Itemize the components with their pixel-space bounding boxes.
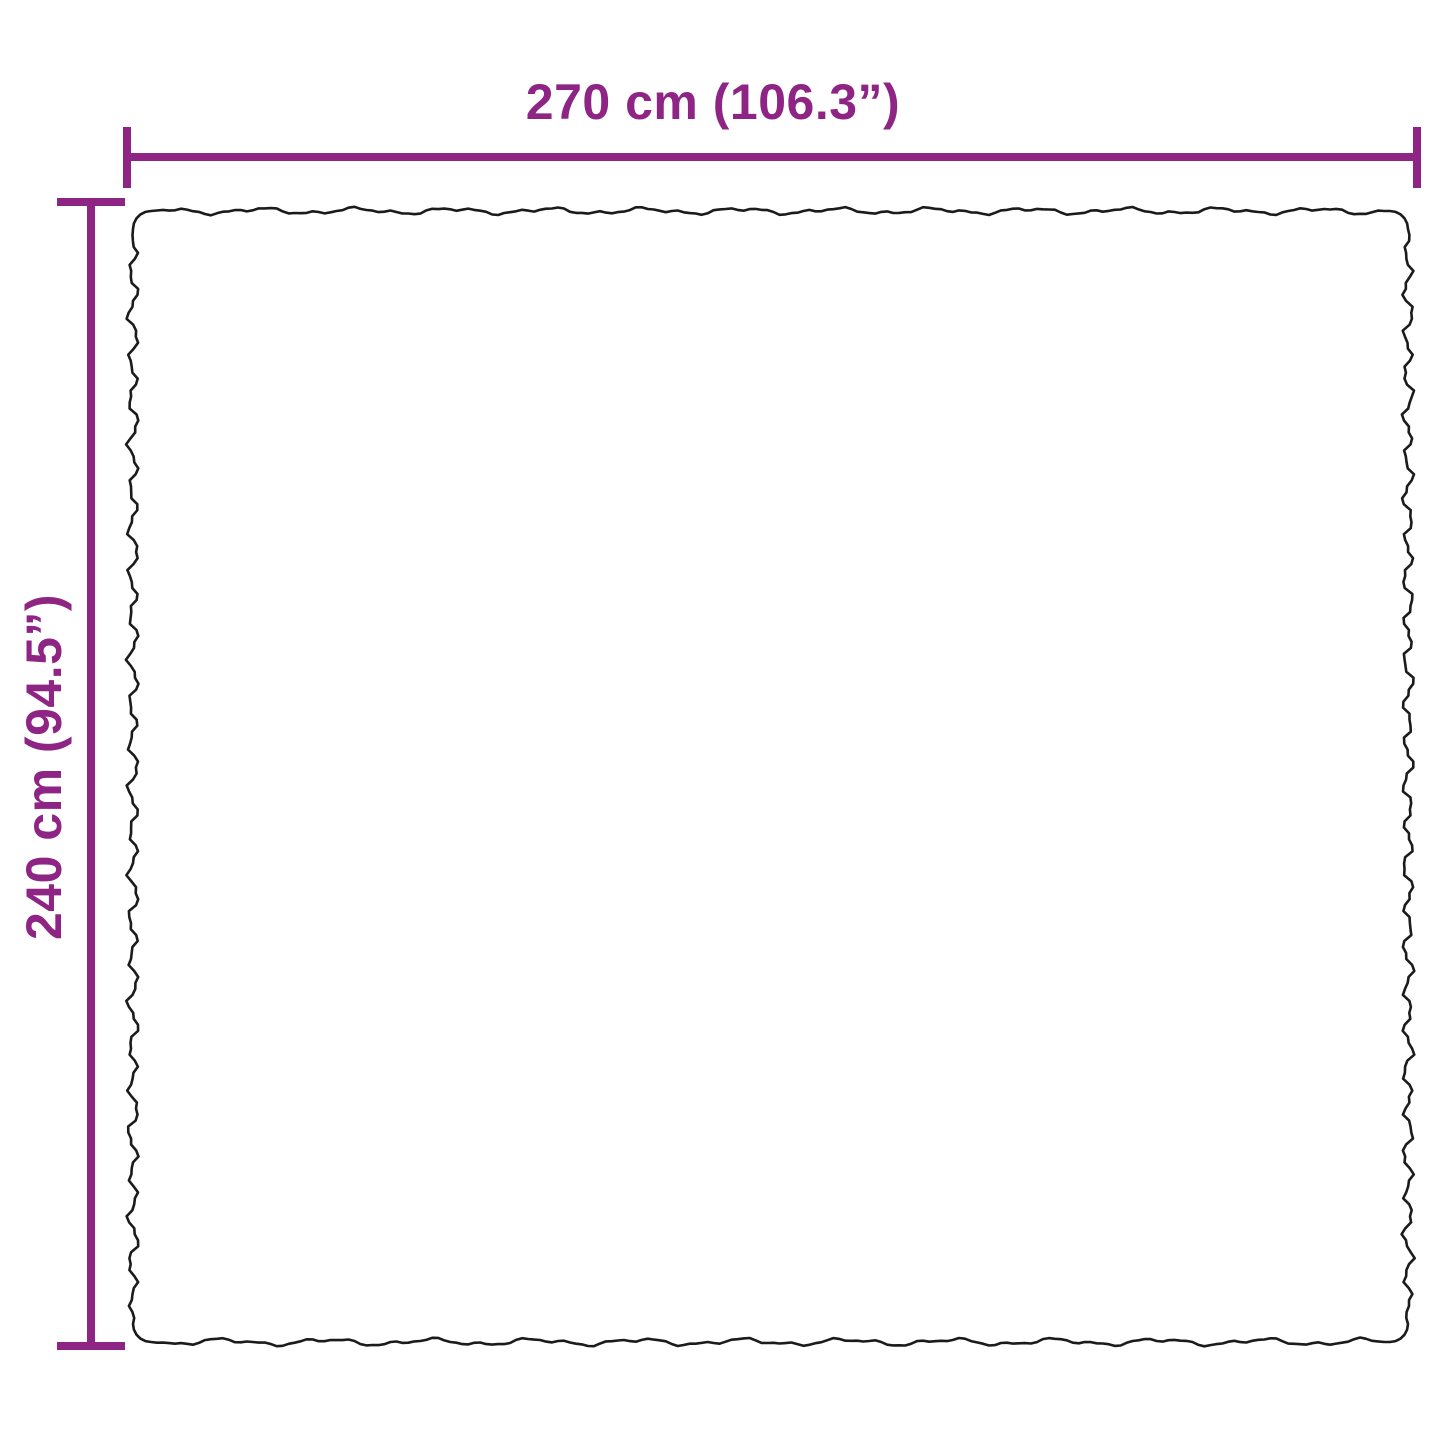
height-dimension-label: 240 cm (94.5”) [15, 594, 73, 940]
dimension-diagram: 270 cm (106.3”) 240 cm (94.5”) [0, 0, 1445, 1445]
width-dimension [127, 127, 1417, 188]
width-dimension-label: 270 cm (106.3”) [526, 73, 900, 131]
rug-outline [126, 207, 1415, 1347]
diagram-canvas [0, 0, 1445, 1445]
